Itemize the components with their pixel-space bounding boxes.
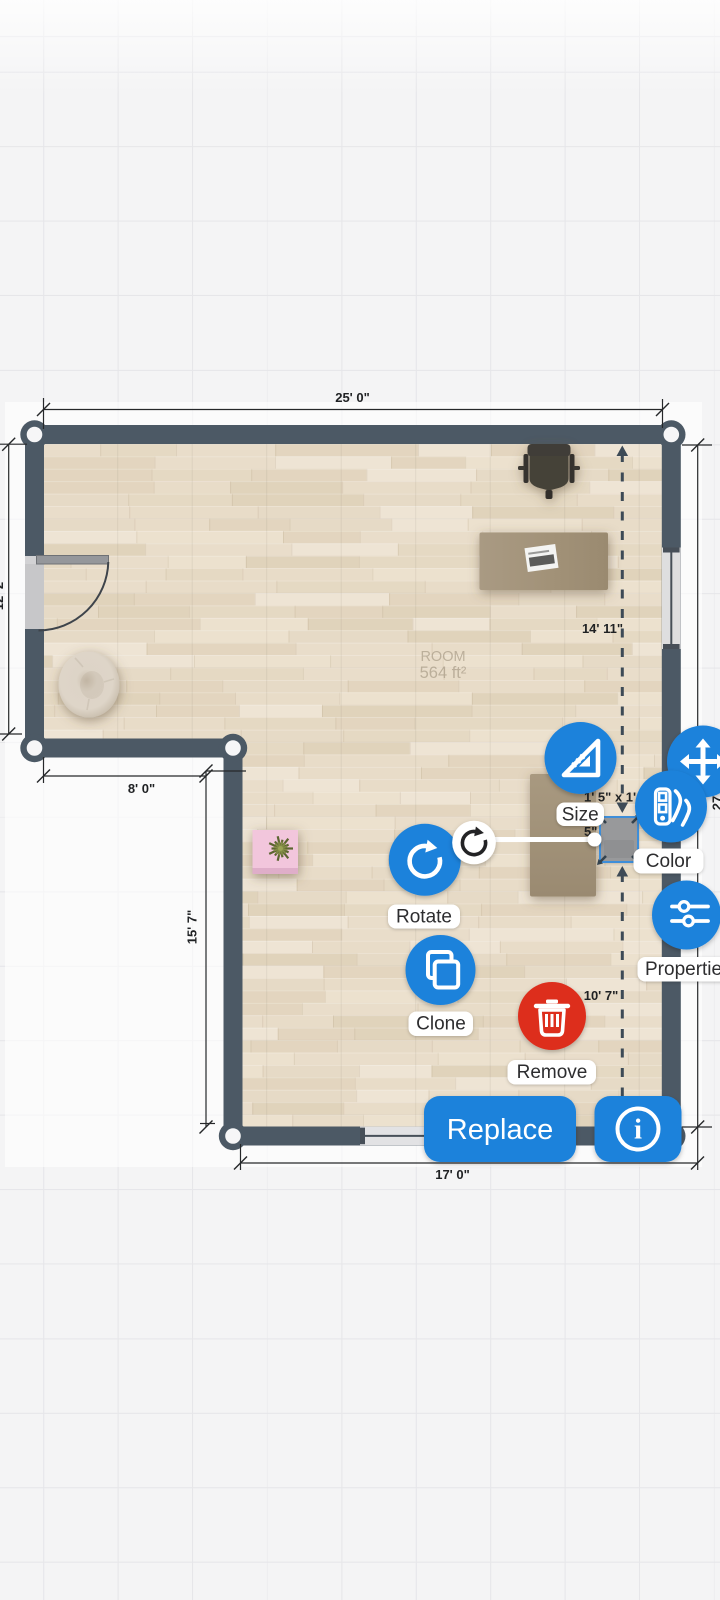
svg-text:Replace: Replace (447, 1114, 553, 1146)
svg-text:i: i (634, 1114, 642, 1146)
svg-text:Remove: Remove (517, 1062, 588, 1083)
svg-text:14' 11": 14' 11" (582, 621, 623, 636)
svg-text:Color: Color (646, 851, 692, 872)
svg-text:Clone: Clone (416, 1014, 466, 1035)
svg-text:Rotate: Rotate (396, 907, 452, 928)
svg-text:ROOM: ROOM (420, 649, 465, 665)
svg-text:17' 0": 17' 0" (435, 1167, 470, 1182)
svg-text:Size: Size (562, 805, 599, 826)
svg-text:25' 0": 25' 0" (335, 390, 370, 405)
svg-text:564 ft²: 564 ft² (420, 664, 467, 682)
svg-text:12' 2": 12' 2" (0, 576, 6, 611)
svg-text:15' 7": 15' 7" (185, 910, 200, 945)
svg-text:Properties: Properties (645, 959, 720, 980)
svg-text:8' 0": 8' 0" (128, 781, 155, 796)
svg-text:10' 7": 10' 7" (584, 988, 619, 1003)
